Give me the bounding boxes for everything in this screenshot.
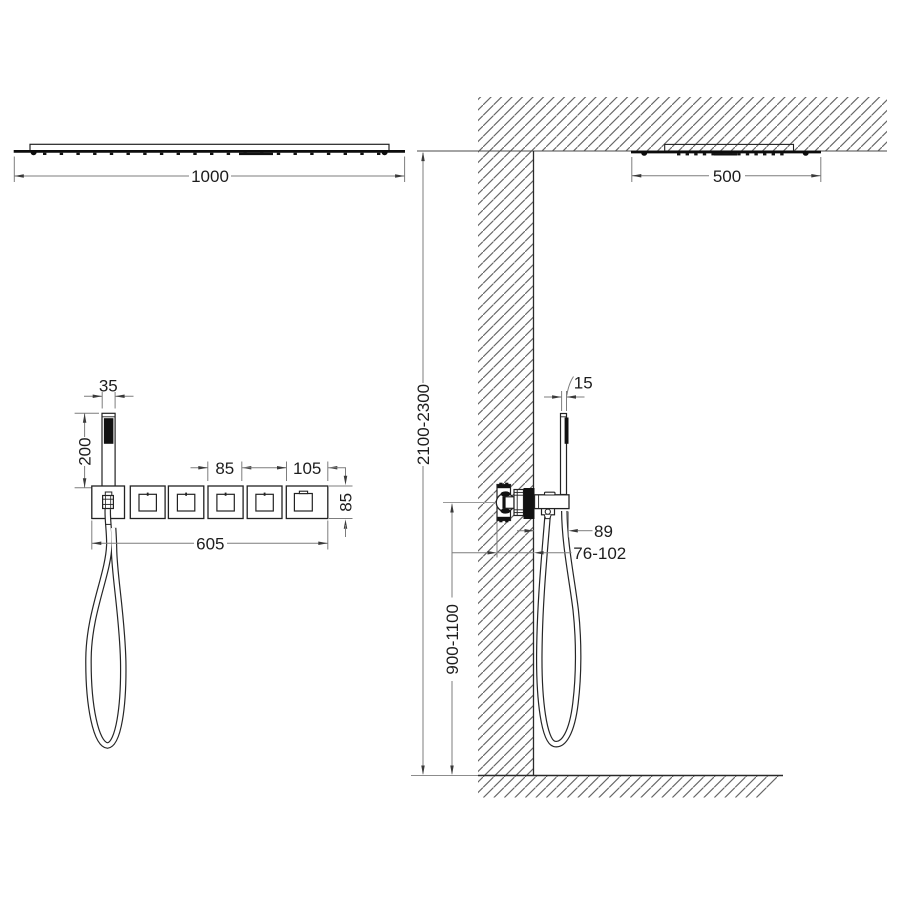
svg-text:900-1100: 900-1100: [443, 604, 462, 675]
svg-text:35: 35: [99, 376, 118, 395]
svg-text:105: 105: [293, 459, 321, 478]
svg-text:200: 200: [76, 437, 95, 465]
svg-text:85: 85: [215, 459, 234, 478]
svg-text:605: 605: [196, 534, 224, 553]
svg-text:85: 85: [337, 493, 356, 512]
svg-text:2100-2300: 2100-2300: [414, 384, 433, 465]
svg-text:76-102: 76-102: [573, 544, 626, 563]
svg-text:15: 15: [574, 374, 593, 393]
svg-text:500: 500: [713, 167, 741, 186]
svg-text:1000: 1000: [191, 167, 229, 186]
svg-text:89: 89: [594, 522, 613, 541]
